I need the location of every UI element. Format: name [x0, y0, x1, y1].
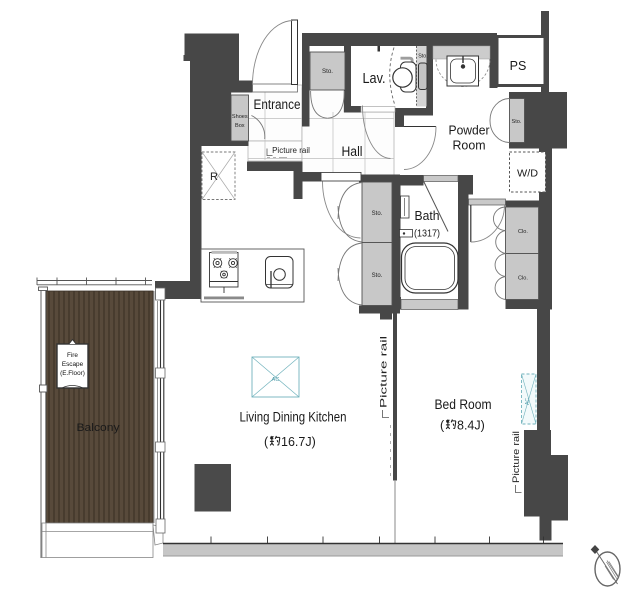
svg-text:Balcony: Balcony	[77, 422, 121, 434]
svg-text:Picture rail: Picture rail	[379, 336, 390, 408]
svg-text:Bed Room: Bed Room	[435, 397, 492, 412]
svg-text:(E.Floor): (E.Floor)	[60, 370, 85, 377]
svg-text:Picture rail: Picture rail	[511, 431, 521, 483]
svg-text:Powder: Powder	[449, 124, 490, 138]
svg-text:Sto.: Sto.	[418, 54, 428, 60]
svg-text:Sto.: Sto.	[512, 119, 522, 125]
svg-text:8.4J): 8.4J)	[457, 419, 485, 433]
svg-text:16.7J): 16.7J)	[281, 435, 316, 449]
svg-text:R: R	[210, 171, 218, 183]
svg-text:Hall: Hall	[342, 144, 363, 159]
svg-text:W/D: W/D	[517, 169, 538, 180]
svg-text:Box: Box	[235, 123, 245, 129]
svg-text:Fire: Fire	[67, 352, 78, 359]
svg-text:Shoes: Shoes	[232, 114, 248, 120]
svg-text:AC: AC	[272, 377, 280, 383]
svg-text:Bath: Bath	[415, 208, 440, 223]
svg-text:Room: Room	[453, 139, 486, 153]
svg-text:Sto.: Sto.	[322, 68, 333, 75]
svg-text:Living Dining Kitchen: Living Dining Kitchen	[240, 410, 347, 425]
svg-text:Clo.: Clo.	[518, 229, 528, 235]
svg-text:Picture rail: Picture rail	[272, 146, 310, 155]
svg-text:Entrance: Entrance	[254, 97, 301, 112]
svg-text:AC: AC	[525, 398, 531, 405]
svg-text:PS: PS	[510, 59, 527, 73]
svg-text:Sto.: Sto.	[372, 273, 383, 279]
svg-text:(1317): (1317)	[414, 229, 440, 240]
svg-text:Lav.: Lav.	[363, 71, 386, 87]
svg-text:Sto.: Sto.	[372, 211, 383, 217]
svg-text:Clo.: Clo.	[518, 276, 528, 282]
svg-text:Escape: Escape	[62, 361, 84, 368]
